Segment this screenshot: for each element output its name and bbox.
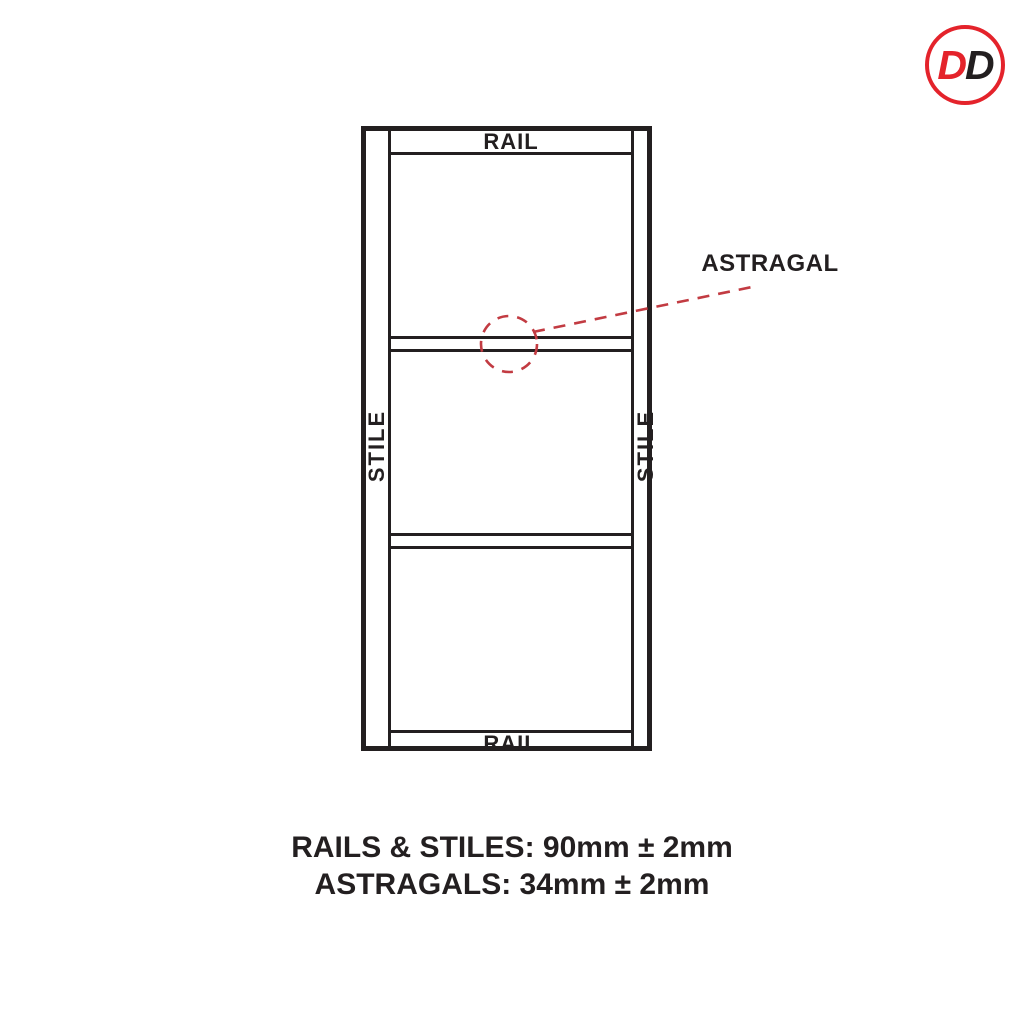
astragal1-top-line: [391, 336, 631, 339]
logo-letter-first: D: [937, 45, 965, 86]
rail-bottom-label: RAIL: [391, 732, 631, 756]
rails-stiles-dimension: RAILS & STILES: 90mm ± 2mm: [0, 829, 1024, 866]
dd-logo: D D: [925, 25, 1005, 105]
astragals-dimension: ASTRAGALS: 34mm ± 2mm: [0, 866, 1024, 903]
rail-top-label: RAIL: [391, 131, 631, 152]
astragal-label: ASTRAGAL: [700, 250, 840, 278]
astragal2-bottom-line: [391, 546, 631, 549]
astragal2-top-line: [391, 533, 631, 536]
stile-right-label: STILE: [635, 396, 657, 496]
logo-letter-second: D: [965, 45, 993, 86]
dimension-notes: RAILS & STILES: 90mm ± 2mm ASTRAGALS: 34…: [0, 829, 1024, 903]
door-diagram: RAIL RAIL STILE STILE: [361, 126, 652, 751]
stile-left-label: STILE: [366, 396, 388, 496]
astragal1-bottom-line: [391, 349, 631, 352]
